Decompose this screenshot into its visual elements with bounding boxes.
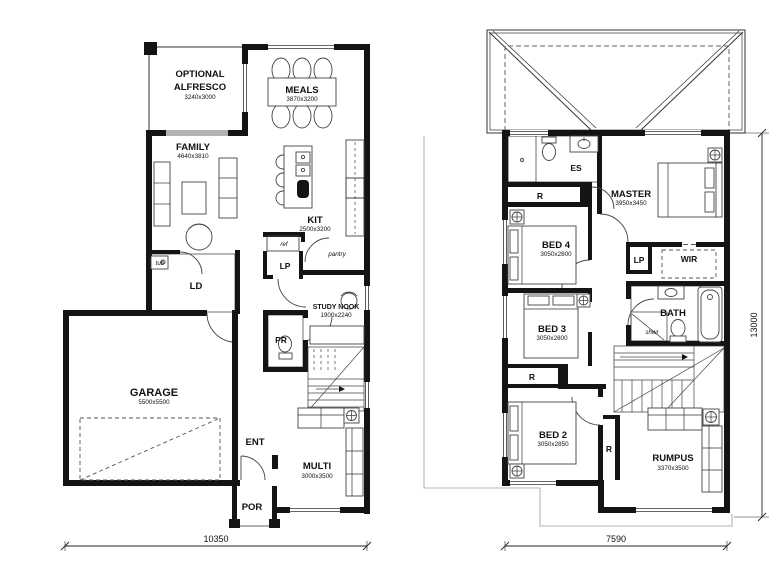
master-window [645, 130, 701, 136]
wall-bed2-top [558, 384, 606, 389]
bed4-side-table [510, 210, 524, 224]
pillow [705, 168, 714, 188]
hip-line [489, 32, 592, 131]
master-bed [658, 163, 722, 217]
roof-outline [487, 30, 745, 133]
wall-pr-bottom [263, 367, 308, 372]
wall-robe3-top [603, 415, 617, 419]
bed3-side-table [577, 294, 590, 307]
wall-pr-top [263, 310, 308, 315]
porch-post-left [229, 519, 240, 528]
ensuite-fixtures [542, 136, 598, 161]
roof-edge-outer [487, 30, 745, 133]
wall-right [364, 50, 370, 514]
front-door-arc [241, 456, 265, 480]
roof-edge-inner [490, 33, 742, 130]
family-furniture [154, 158, 237, 250]
wall-robe3-right [615, 415, 620, 480]
multi-label: MULTI [303, 461, 331, 472]
wall-right [724, 130, 730, 513]
master-label: MASTER [611, 189, 651, 200]
ground-dimension: 10350 [61, 534, 371, 551]
rumpus-sofa-v [702, 426, 722, 492]
ground-floor-plan: OPTIONAL ALFRESCO 3240x3000 MEALS 3870x3… [61, 42, 371, 551]
wall-laundry-top [146, 250, 180, 254]
wall-pantry-left [301, 232, 305, 242]
rumpus-size: 3370x3500 [657, 465, 689, 472]
first-width-dimension: 7590 [606, 534, 626, 544]
wall-pr-left [263, 310, 268, 372]
pantry-door [305, 238, 329, 262]
dining-chair [272, 104, 290, 128]
multi-size: 3000x3500 [301, 473, 333, 480]
ent-label: ENT [246, 437, 265, 448]
ensuite-shower-tiles [508, 136, 536, 182]
bath-label: BATH [660, 308, 686, 319]
bed3-label: BED 3 [538, 324, 566, 335]
headboard [716, 163, 722, 217]
sofa-right [219, 158, 237, 218]
garage-car-space [80, 418, 220, 480]
wir-label: WIR [681, 254, 698, 264]
es-label: ES [570, 163, 582, 173]
robe-label-2: R [529, 372, 535, 382]
wall-garage-right [232, 310, 238, 486]
pillow [510, 257, 518, 280]
por-label: POR [242, 502, 263, 513]
lp-label: LP [280, 261, 291, 271]
wall-alfresco-bottom-right [228, 130, 248, 136]
pillow [510, 435, 518, 460]
bed2-side-table [510, 464, 524, 478]
wall-bed3-top [502, 288, 592, 293]
first-dimension-height: 13000 [734, 129, 769, 521]
dining-chair [314, 104, 332, 128]
family-label: FAMILY [176, 142, 211, 153]
dining-chair [293, 104, 311, 128]
ground-width-dimension: 10350 [203, 534, 228, 544]
master-door [600, 214, 628, 242]
multi-sofa-v [346, 428, 363, 496]
wall-pantry-bottom [301, 270, 370, 275]
wall-garage-bottom [63, 480, 240, 486]
hip-line [640, 32, 743, 131]
wall-lp-right [648, 247, 652, 274]
pillow [705, 192, 714, 212]
kit-label: KIT [307, 215, 323, 226]
island-bench [284, 146, 312, 208]
pantry-label: pantry [327, 251, 346, 258]
first-height-dimension: 13000 [749, 312, 759, 337]
wall-lp-stub [263, 275, 273, 279]
toilet-bowl [543, 144, 556, 161]
wall-lp-bottom [626, 270, 652, 274]
floor-plan-drawing: OPTIONAL ALFRESCO 3240x3000 MEALS 3870x3… [0, 0, 779, 564]
wall-robe-bottom [502, 202, 592, 207]
wall-bath-top [626, 281, 724, 286]
lp-door [278, 279, 306, 307]
alfresco-side-window [244, 64, 247, 112]
bed4-label: BED 4 [542, 240, 571, 251]
garage-label: GARAGE [130, 387, 178, 399]
first-dimension-width: 7590 [501, 534, 731, 551]
wall-top-2 [334, 44, 370, 50]
coffee-table [182, 182, 206, 214]
stairwell-window [364, 382, 370, 408]
bed3-size: 3050x2800 [536, 335, 568, 342]
study-nook-window [364, 286, 370, 310]
floor-waste [521, 159, 524, 162]
stair-direction-arrow [339, 386, 345, 392]
wall-bath-left-top [626, 286, 631, 299]
wall-garage-left [63, 310, 69, 486]
stair-direction-arrow [682, 354, 688, 360]
bed2-window [502, 413, 508, 457]
alfresco-stacker-door [166, 131, 228, 135]
rumpus-window [636, 507, 712, 513]
porch-post-right [269, 519, 280, 528]
ld-label: LD [190, 281, 203, 292]
bed3-window [502, 296, 508, 338]
alfresco-post [144, 42, 157, 55]
wall-entry-stub [272, 455, 278, 469]
pillow [510, 406, 518, 431]
es-window [510, 130, 548, 136]
study-nook-label: STUDY NOOK [313, 304, 360, 311]
toilet-tank [670, 336, 686, 342]
master-size: 3950x3450 [615, 200, 647, 207]
wall-wir-top [626, 242, 724, 247]
multi-furniture [298, 408, 363, 496]
wall-top-1 [248, 44, 268, 50]
rumpus-furniture [648, 408, 722, 492]
shower-label: shwr [645, 329, 659, 336]
wall-lp-right [299, 251, 303, 279]
wall-master-left [597, 188, 602, 214]
cooktop [297, 180, 309, 198]
wall-laundry-right [235, 250, 240, 314]
kit-size: 2500x3200 [299, 226, 331, 233]
tub-label: tub [156, 260, 165, 267]
rumpus-label: RUMPUS [652, 453, 693, 464]
upper-floor-overhang-dashed [505, 46, 729, 131]
ground-furniture [80, 58, 364, 496]
pr-label: PR [275, 335, 287, 345]
wall-bed2-right-bottom [598, 425, 603, 480]
first-floor-plan: ES MASTER 3950x3450 R BED 4 3050x2800 LP… [424, 30, 769, 551]
wall-pr-right-top [303, 310, 308, 318]
study-nook-size: 1900x2240 [320, 312, 352, 319]
meals-label: MEALS [285, 85, 318, 96]
alfresco-size: 3240x3000 [184, 94, 216, 101]
multi-window [290, 507, 340, 513]
wall-garage-top [63, 310, 207, 316]
bed2-bottom-window [510, 480, 556, 486]
garage-size: 5500x5500 [138, 399, 170, 406]
wall-lp-left [626, 247, 630, 274]
wall-family-left [146, 130, 152, 316]
floor-plan-page: OPTIONAL ALFRESCO 3240x3000 MEALS 3870x3… [0, 0, 779, 564]
wall-bed2-right-top [598, 389, 603, 397]
toilet-bowl [671, 320, 685, 337]
sofa-left [154, 162, 170, 226]
meals-size: 3870x3200 [286, 96, 318, 103]
bed4-size: 3050x2800 [540, 251, 572, 258]
alfresco-label-2: ALFRESCO [174, 82, 226, 93]
alfresco-label-1: OPTIONAL [175, 69, 224, 80]
lp-upper-label: LP [634, 255, 645, 265]
rumpus-sofa-h [648, 408, 702, 430]
family-size: 4640x3810 [177, 153, 209, 160]
meals-window [268, 44, 334, 50]
ground-stairs [308, 347, 364, 411]
garage-internal-door [207, 313, 232, 342]
wall-bed3-right-bottom [588, 332, 592, 366]
bath-vanity [658, 286, 684, 299]
desk [310, 326, 364, 344]
master-side-table [708, 148, 722, 162]
ref-label: ref [280, 241, 289, 248]
wall-alfresco-divider-top [242, 44, 248, 64]
toilet-tank [542, 137, 556, 143]
wall-lp-left [263, 251, 267, 279]
laundry-door [180, 252, 202, 274]
pillow [528, 296, 549, 305]
robe-label-3: R [606, 444, 612, 454]
bed2-label: BED 2 [539, 430, 567, 441]
wall-bed4-right [588, 202, 592, 260]
first-stairs [614, 346, 724, 412]
pillow [510, 230, 518, 253]
bed2-size: 3050x2850 [537, 441, 569, 448]
bed4-window [502, 220, 508, 264]
wall-es-bottom [502, 182, 580, 187]
pillow [553, 296, 574, 305]
robe-label-1: R [537, 191, 543, 201]
